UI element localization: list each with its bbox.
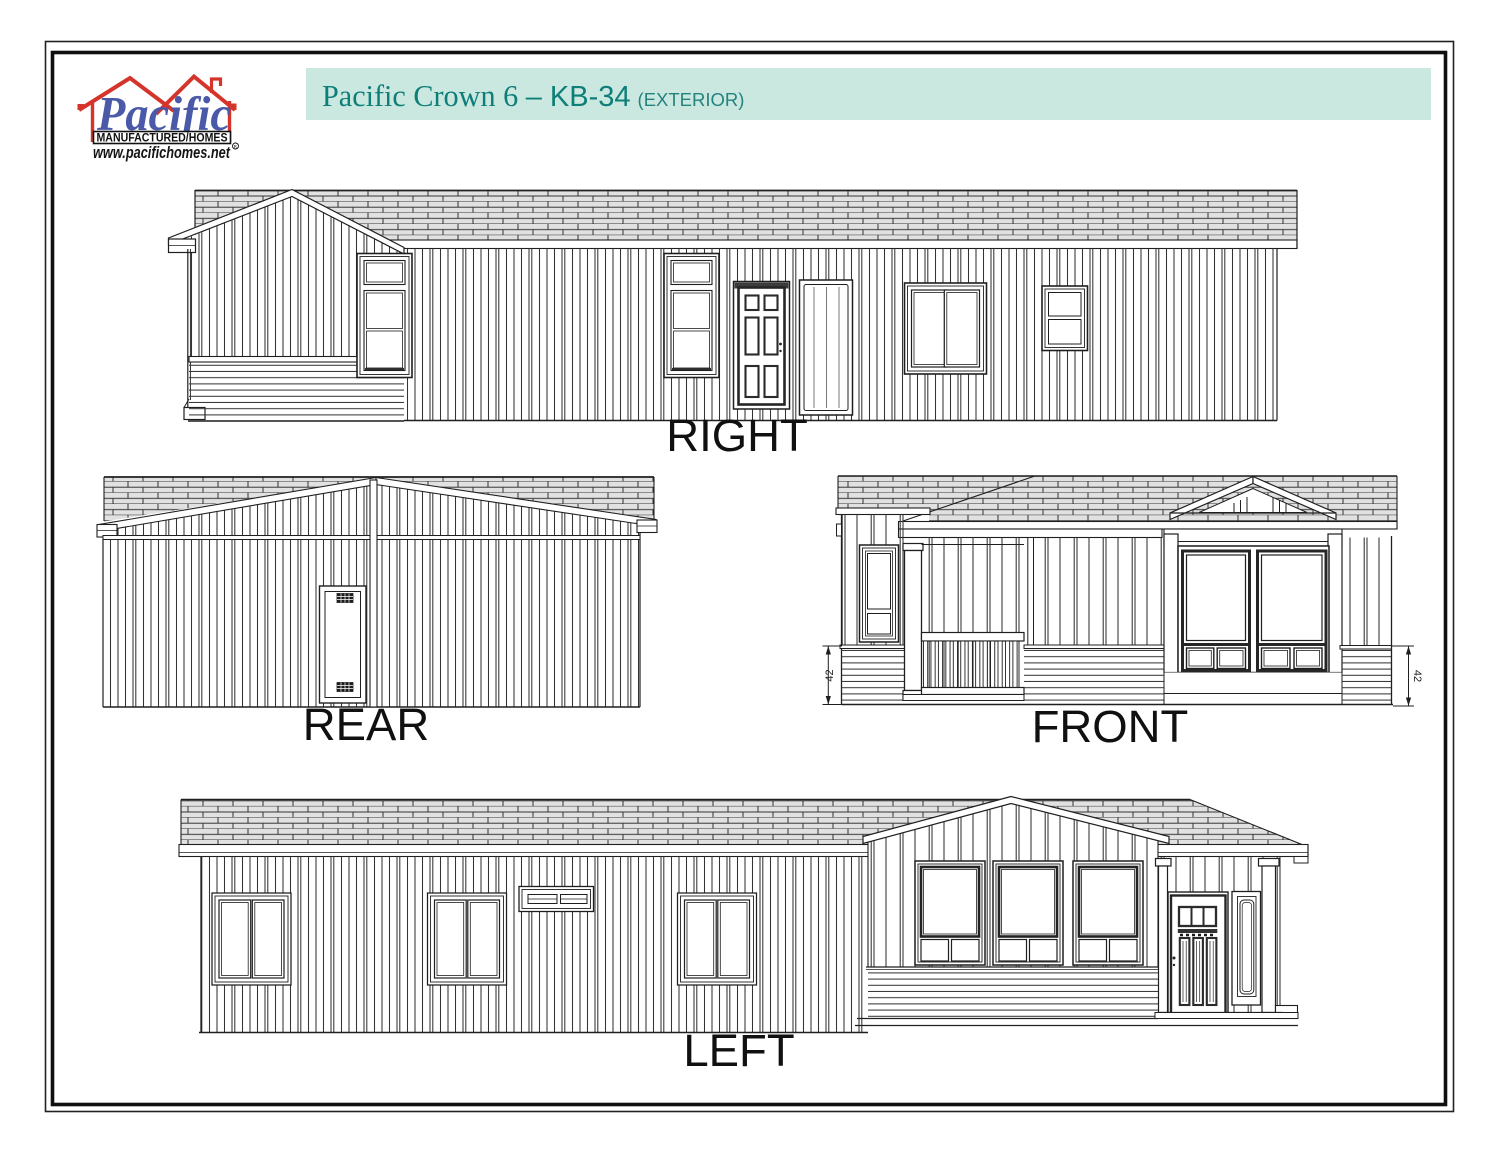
svg-text:LEFT: LEFT xyxy=(683,1025,794,1076)
svg-text:42: 42 xyxy=(1411,670,1423,682)
svg-text:REAR: REAR xyxy=(303,699,429,750)
svg-text:FRONT: FRONT xyxy=(1032,701,1189,752)
svg-text:42: 42 xyxy=(824,669,836,681)
svg-text:www.pacifichomes.net: www.pacifichomes.net xyxy=(93,143,231,162)
svg-text:RIGHT: RIGHT xyxy=(666,410,808,461)
